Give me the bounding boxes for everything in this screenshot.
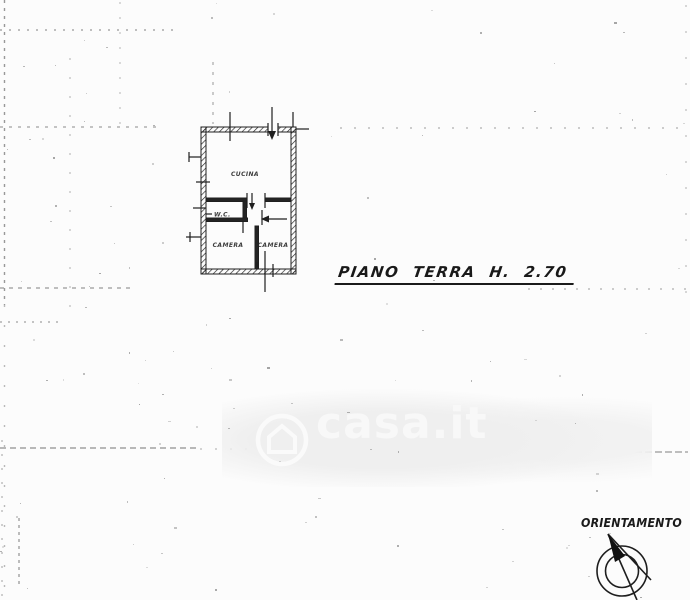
scan-noise-lines xyxy=(0,0,690,600)
door-arrow-left-icon xyxy=(261,216,287,223)
room-label-camera-2: CAMERA xyxy=(258,242,289,249)
plan-caption: PIANO TERRA H. 2.70 xyxy=(334,263,576,285)
door-arrow-down-icon xyxy=(249,193,255,210)
compass-icon xyxy=(573,514,690,600)
room-label-wc: W.C. xyxy=(214,212,231,219)
scanned-floorplan-page: CUCINA W.C. CAMERA CAMERA PIANO TERRA H.… xyxy=(0,0,690,600)
room-label-cucina: CUCINA xyxy=(231,171,259,178)
compass: ORIENTAMENTO xyxy=(573,514,690,600)
floor-plan-walls xyxy=(201,127,296,274)
entrance-arrow-icon xyxy=(268,107,276,140)
room-label-camera-1: CAMERA xyxy=(213,242,244,249)
floor-plan-drawing: CUCINA W.C. CAMERA CAMERA xyxy=(0,0,690,600)
